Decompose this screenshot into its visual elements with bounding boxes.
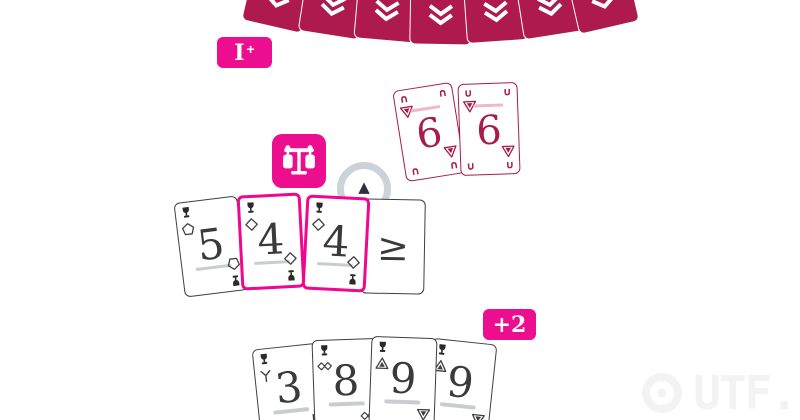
balance-scale-badge [272,134,326,188]
scale-icon [281,143,317,179]
watermark: UTF. [639,370,796,416]
card-back-logo-icon [585,0,621,19]
card-corner [346,256,360,286]
trophy-icon [436,343,448,357]
horseshoe-icon: ∩ [399,93,410,105]
card-back-logo-icon [480,0,512,30]
horseshoe-icon: ∪ [503,86,512,97]
pentagon-suit-icon [227,257,241,271]
triangle-suit-icon [471,413,485,420]
text-cursor-icon: I [234,42,244,64]
card-rank: 6 [476,110,503,151]
watermark-text: UTF. [693,370,796,416]
card-rank: ≥ [377,227,410,266]
card-corner [471,413,485,420]
fork-suit-icon [259,369,273,383]
horseshoe-icon: ∩ [410,165,421,177]
opponent-card-back [409,0,472,46]
selected-card-4-a[interactable]: 4 [237,192,306,290]
triangle-suit-icon [502,145,515,157]
horseshoe-icon: ∪ [464,88,473,99]
center-card-6-left: ∩ ∩ ∩ ∩ 6 [392,82,466,182]
card-corner [179,206,195,236]
horseshoe-icon: ∩ [437,87,448,99]
draw-plus-badge: I + [217,37,272,68]
trophy-icon [313,202,325,216]
card-rank: 9 [445,361,476,406]
triangle-suit-icon [375,357,388,369]
card-back-logo-icon [260,0,296,18]
card-rank: 4 [322,220,351,263]
card-rank: 4 [256,218,285,261]
card-back-logo-icon [425,1,456,33]
trophy-icon [377,341,388,354]
card-rank: 3 [273,366,304,411]
trophy-icon [347,272,359,286]
card-rank: 8 [332,360,360,403]
trophy-icon [245,202,257,216]
card-back-logo-icon [315,0,349,25]
trophy-icon [319,345,330,358]
trophy-icon [258,353,270,367]
diamond-suit-icon [347,256,361,270]
card-back-logo-icon [370,0,403,30]
card-rank: 9 [389,358,417,401]
horseshoe-icon: ∪ [466,161,475,172]
game-table: I + ▲ ∩ ∩ ∩ ∩ 6 ∪ ∪ ∪ ∪ 6 5 [0,0,800,420]
selected-card-4-b[interactable]: 4 [302,194,371,292]
pentagon-suit-icon [181,222,195,236]
diamond-suit-icon [284,252,298,266]
comparison-card-gte[interactable]: ≥ [360,198,426,294]
card-corner [417,409,430,420]
center-card-6-right: ∪ ∪ ∪ ∪ 6 [457,82,520,176]
card-corner [257,353,273,383]
card-corner [284,252,298,282]
trophy-icon [285,268,297,282]
triangle-suit-icon [444,145,459,159]
watermark-ring-icon [639,370,685,416]
triangle-suit-icon [417,409,430,420]
double-diamond-suit-icon [317,360,332,372]
horseshoe-icon: ∩ [449,159,460,171]
horseshoe-icon: ∪ [505,159,514,170]
up-arrow-icon: ▲ [358,180,370,195]
card-corner [317,344,333,372]
trophy-icon [180,206,193,220]
rank-underline [384,400,420,405]
plus-icon: + [247,42,255,56]
rank-underline [329,402,365,407]
card-back-logo-icon [533,0,567,25]
plus-two-badge: +2 [483,309,536,340]
card-rank: 5 [195,222,227,267]
card-rank: 6 [414,112,445,155]
card-corner [375,341,389,369]
hand-card-9-a[interactable]: 9 [368,336,437,420]
